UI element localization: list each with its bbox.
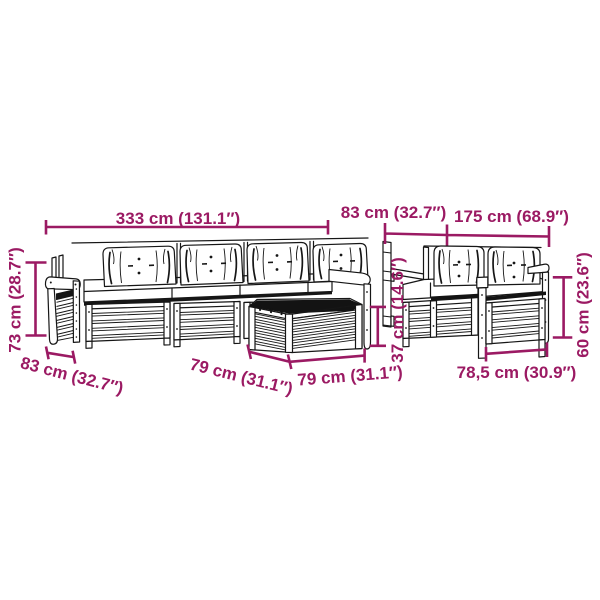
svg-text:78,5 cm (30.9″): 78,5 cm (30.9″) <box>457 363 577 382</box>
svg-text:73 cm (28.7″): 73 cm (28.7″) <box>6 247 25 352</box>
svg-text:175 cm (68.9″): 175 cm (68.9″) <box>454 207 569 226</box>
svg-text:60 cm (23.6″): 60 cm (23.6″) <box>574 252 593 357</box>
svg-text:83 cm (32.7″): 83 cm (32.7″) <box>341 203 446 222</box>
svg-text:333 cm (131.1″): 333 cm (131.1″) <box>116 209 240 228</box>
svg-text:37 cm (14.6″): 37 cm (14.6″) <box>388 257 407 362</box>
